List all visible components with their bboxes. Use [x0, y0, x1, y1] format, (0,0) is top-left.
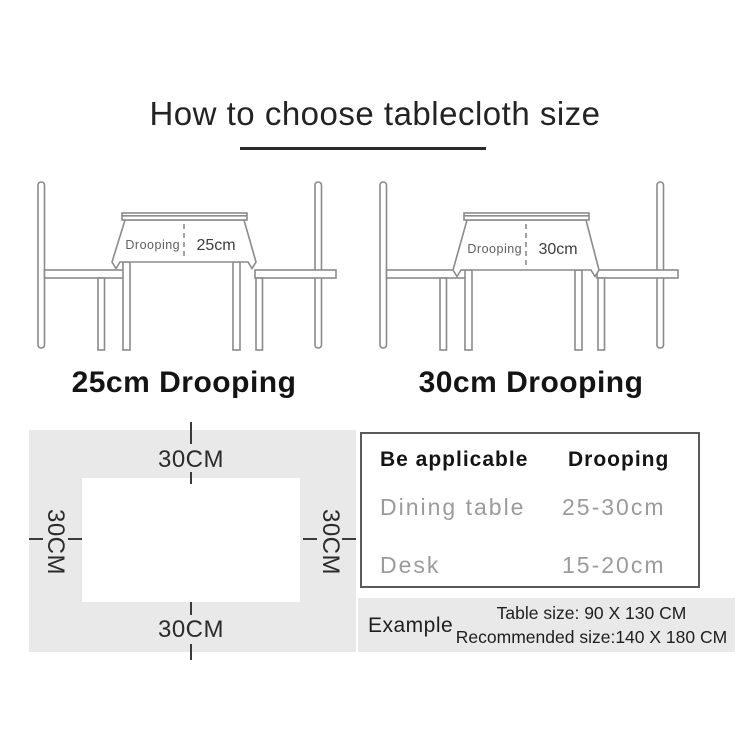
- chair-front-leg: [598, 278, 605, 350]
- dimension-tick: [342, 538, 356, 540]
- spec-value-desk: 15-20cm: [562, 552, 665, 579]
- example-label: Example: [368, 614, 453, 638]
- dimension-tick: [303, 538, 317, 540]
- example-table-size: Table size: 90 X 130 CM: [497, 601, 687, 625]
- drooping-spec-table: Be applicable Drooping Dining table 25-3…: [360, 432, 700, 588]
- chair-seat: [45, 270, 126, 278]
- chair-right-icon: [255, 182, 336, 350]
- spec-header-applicable: Be applicable: [380, 448, 528, 472]
- tabletop-area: [82, 478, 300, 602]
- chair-left-icon: [38, 182, 126, 350]
- caption-30cm-drooping: 30cm Drooping: [391, 366, 671, 400]
- dimension-bottom-label: 30CM: [131, 616, 251, 644]
- page-title: How to choose tablecloth size: [0, 95, 750, 133]
- illustration-30cm-drooping: Drooping 30cm: [360, 170, 690, 360]
- spec-row-dining-table: Dining table: [380, 494, 525, 521]
- caption-25cm-drooping: 25cm Drooping: [44, 366, 324, 400]
- table-leg-right: [575, 270, 582, 350]
- infographic-canvas: How to choose tablecloth size Drooping 2…: [0, 0, 750, 750]
- dimension-top-label: 30CM: [131, 446, 251, 474]
- example-recommended-size: Recommended size:140 X 180 CM: [456, 625, 727, 649]
- chair-back-post: [38, 182, 45, 348]
- chair-right-icon: [597, 182, 678, 350]
- chair-back-post: [315, 182, 322, 348]
- example-box: Example Table size: 90 X 130 CM Recommen…: [358, 598, 735, 652]
- dimension-tick: [190, 602, 192, 615]
- chair-back-post: [657, 182, 664, 348]
- dimension-tick: [68, 538, 82, 540]
- table-leg-left: [123, 262, 130, 350]
- chair-front-leg: [98, 278, 105, 350]
- chair-seat: [255, 270, 336, 278]
- chair-back-post: [380, 182, 387, 348]
- table-leg-left: [465, 270, 472, 350]
- dimension-tick: [190, 472, 192, 484]
- drooping-annotation: Drooping 25cm: [125, 236, 235, 254]
- dimension-tick: [190, 644, 192, 660]
- dimension-left-label: 30CM: [41, 507, 69, 577]
- dimension-right-label: 30CM: [316, 507, 344, 577]
- chair-seat: [597, 270, 678, 278]
- table-leg-right: [233, 262, 240, 350]
- chair-front-leg: [440, 278, 447, 350]
- spec-header-drooping: Drooping: [568, 448, 669, 472]
- drooping-annotation: Drooping 30cm: [467, 240, 577, 258]
- example-lines: Table size: 90 X 130 CM Recommended size…: [450, 601, 733, 649]
- tablecloth-size-diagram: 30CM 30CM 30CM 30CM: [29, 430, 356, 652]
- spec-value-dining-table: 25-30cm: [562, 494, 665, 521]
- dimension-tick: [190, 422, 192, 444]
- title-underline: [240, 147, 486, 150]
- chair-front-leg: [256, 278, 263, 350]
- illustration-25cm-drooping: Drooping 25cm: [18, 170, 348, 360]
- spec-row-desk: Desk: [380, 552, 440, 579]
